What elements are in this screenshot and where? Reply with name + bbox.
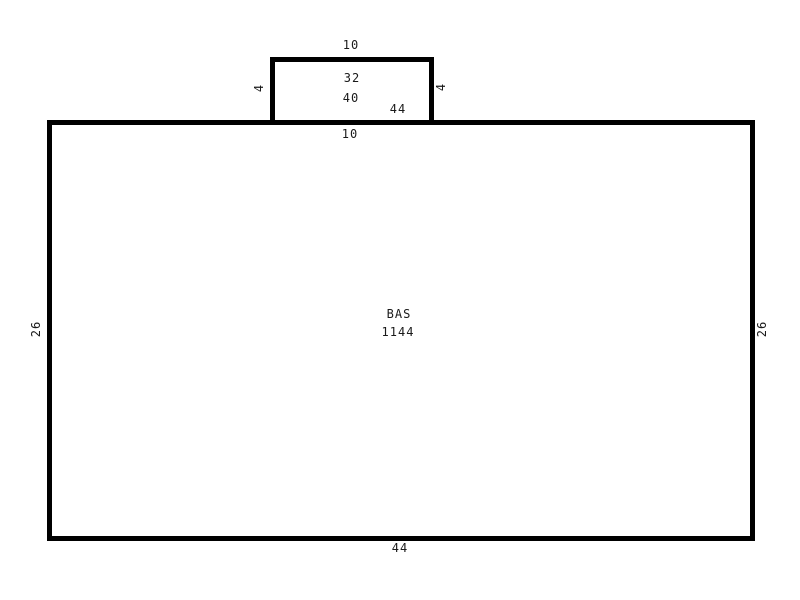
- top-extension-top-dim-label: 10: [343, 39, 359, 51]
- top-extension-right-dim-label: 4: [435, 83, 447, 91]
- top-extension-inner-label-2: 40: [343, 92, 359, 104]
- top-extension-left-dim-label: 4: [253, 84, 265, 92]
- main-area-bottom-dim-label: 44: [392, 542, 408, 554]
- top-extension-inner-label-1: 32: [344, 72, 360, 84]
- main-area-name-label: BAS: [387, 308, 412, 320]
- floorplan-sketch: 10 4 4 32 40 44 10 26 26 BAS 1144 44: [0, 0, 800, 600]
- top-extension-inner-label-3: 44: [390, 103, 406, 115]
- main-area-top-segment-dim-label: 10: [342, 128, 358, 140]
- main-area-right-dim-label: 26: [756, 321, 768, 337]
- main-area-value-label: 1144: [382, 326, 415, 338]
- main-area-left-dim-label: 26: [30, 321, 42, 337]
